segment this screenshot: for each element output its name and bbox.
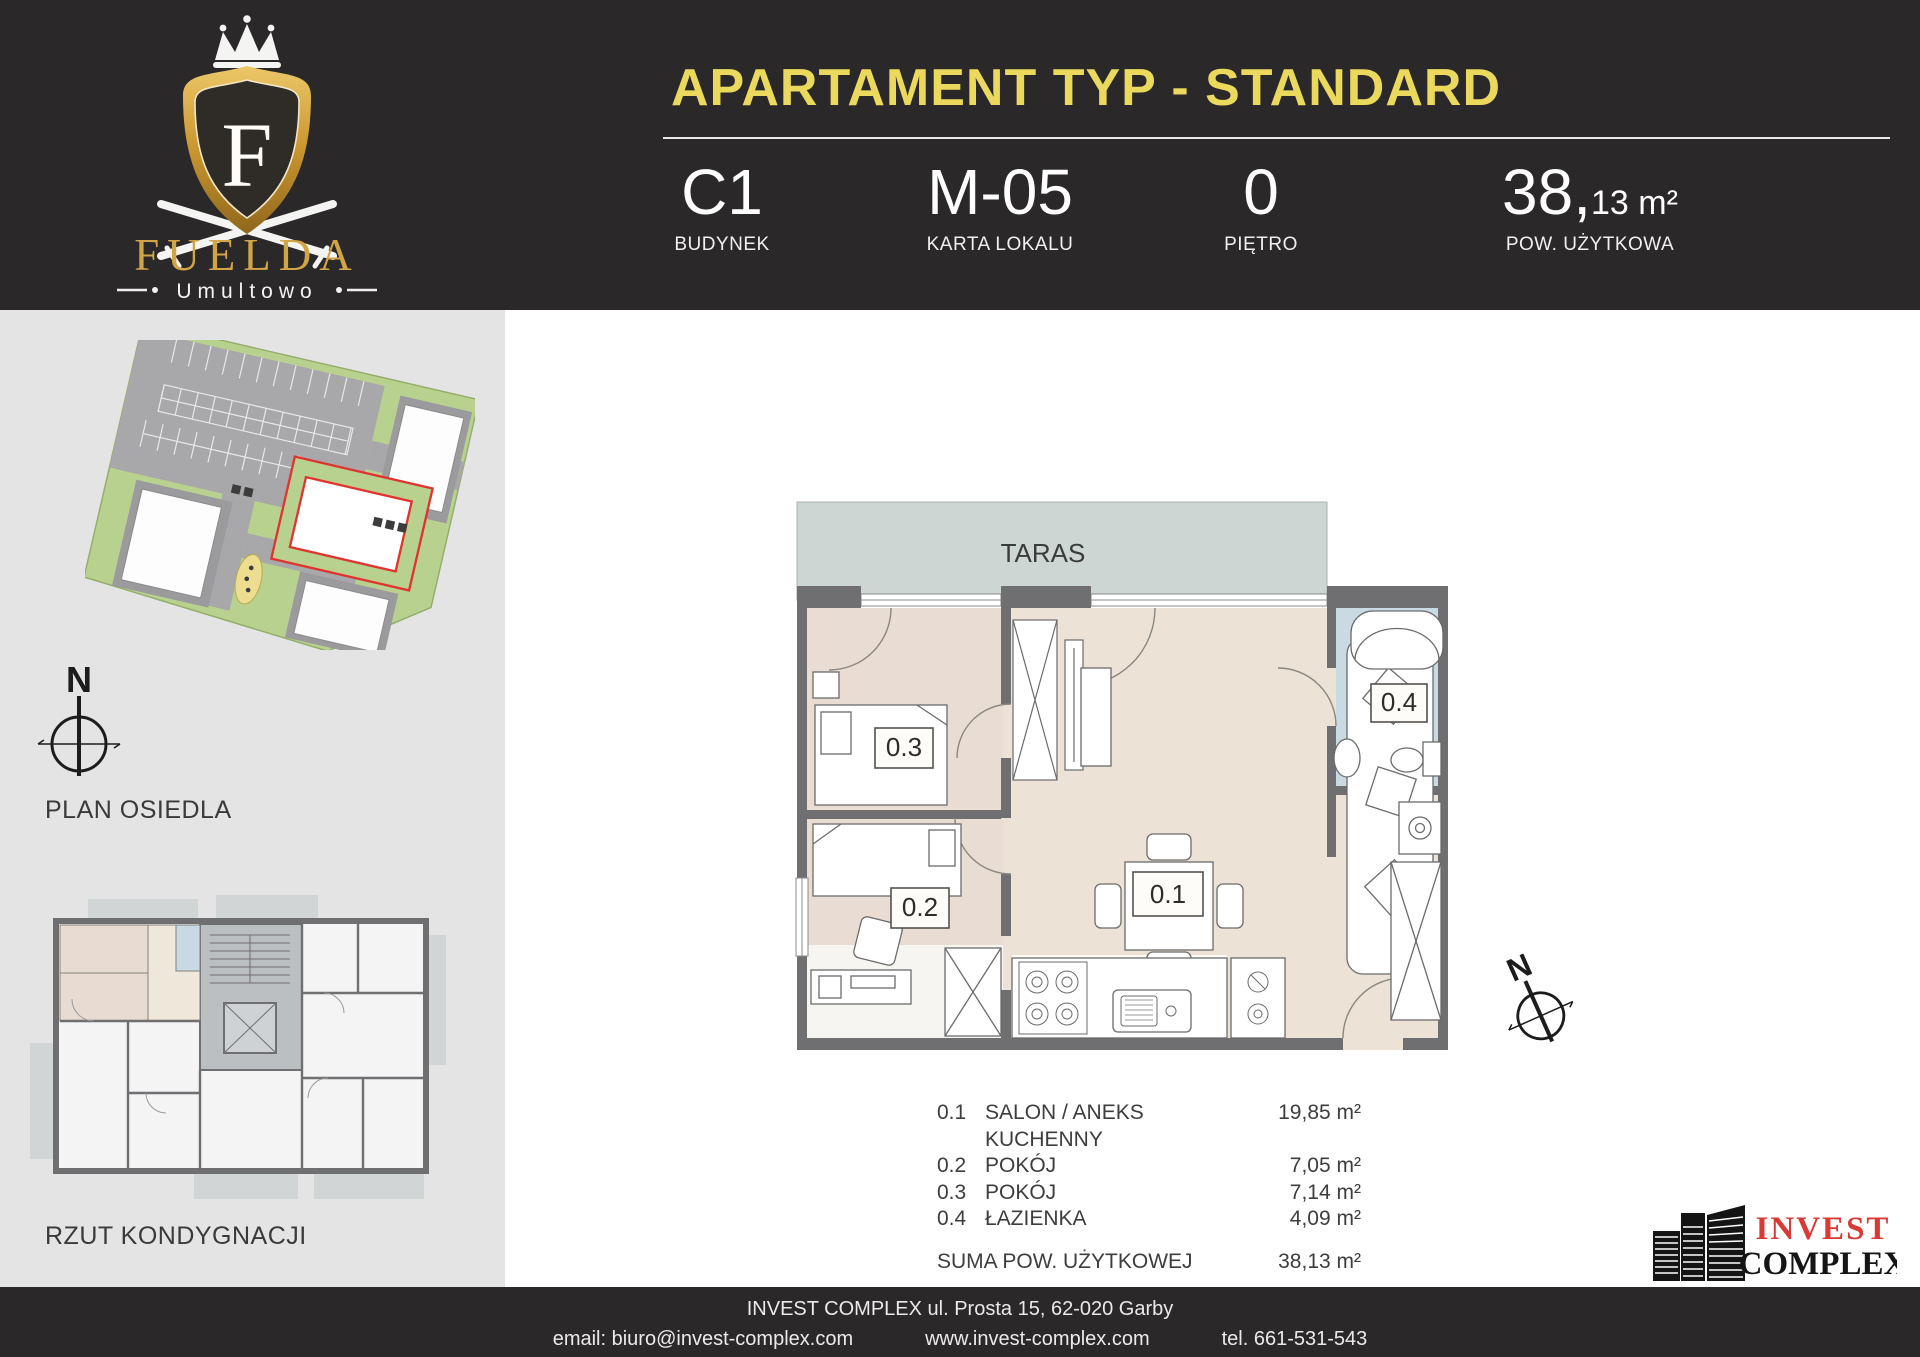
compass-icon: N — [30, 662, 140, 784]
logo-monogram: F — [221, 104, 272, 206]
legend-row: 0.4 ŁAZIENKA 4,09 m² — [937, 1206, 1361, 1233]
entrance-opening — [1343, 1038, 1403, 1050]
page-title: APARTAMENT TYP - STANDARD — [671, 58, 1501, 118]
footer-address: INVEST COMPLEX ul. Prosta 15, 62-020 Gar… — [0, 1298, 1920, 1321]
info-floor: 0 PIĘTRO — [1224, 160, 1298, 256]
invest-complex-logo: INVEST COMPLEX — [1645, 1197, 1897, 1285]
bathroom-label: 0.4 — [1371, 684, 1427, 722]
footer-phone: tel. 661-531-543 — [1222, 1328, 1368, 1351]
hall-wardrobe — [1391, 802, 1441, 1020]
svg-text:0.4: 0.4 — [1381, 687, 1417, 717]
legend-row: 0.3 POKÓJ 7,14 m² — [937, 1180, 1361, 1207]
stair-core — [200, 924, 302, 1070]
legend-row: 0.2 POKÓJ 7,05 m² — [937, 1153, 1361, 1180]
shield-icon: F — [183, 66, 311, 234]
room-02-label: 0.2 — [891, 888, 949, 928]
highlighted-apartment — [60, 925, 200, 1021]
fuelda-logo: F FUELDA Umultowo — [95, 8, 399, 308]
floor-overview — [28, 893, 448, 1211]
footer-website: www.invest-complex.com — [925, 1328, 1150, 1351]
side-window — [796, 878, 808, 956]
buildings-icon — [1653, 1205, 1745, 1281]
footer-email: email: biuro@invest-complex.com — [553, 1328, 853, 1351]
legend-total: SUMA POW. UŻYTKOWEJ 38,13 m² — [937, 1249, 1361, 1275]
plan-compass-icon: N — [1492, 948, 1592, 1063]
area-label: POW. UŻYTKOWA — [1502, 234, 1678, 256]
salon-label: 0.1 — [1133, 872, 1203, 916]
logo-location: Umultowo — [176, 280, 317, 303]
svg-text:0.3: 0.3 — [886, 732, 922, 762]
floor-label: PIĘTRO — [1224, 234, 1298, 256]
footer: INVEST COMPLEX ul. Prosta 15, 62-020 Gar… — [0, 1287, 1920, 1357]
svg-text:N: N — [1501, 948, 1537, 989]
closets — [1013, 620, 1083, 780]
room-03-label: 0.3 — [875, 728, 933, 768]
header-divider — [663, 137, 1890, 139]
info-area: 38,13 m² POW. UŻYTKOWA — [1502, 160, 1678, 256]
site-plan-caption: PLAN OSIEDLA — [45, 796, 232, 825]
crown-icon — [213, 15, 281, 68]
svg-text:0.2: 0.2 — [902, 892, 938, 922]
kitchen — [1012, 958, 1285, 1038]
building-label: BUDYNEK — [674, 234, 769, 256]
info-building: C1 BUDYNEK — [674, 160, 769, 256]
unit-label: KARTA LOKALU — [927, 234, 1074, 256]
logo-brand: FUELDA — [134, 230, 360, 280]
floor-value: 0 — [1224, 160, 1298, 224]
apartment-card: F FUELDA Umultowo APARTAMENT TYP - STAND… — [0, 0, 1920, 1357]
area-value: 38,13 m² — [1502, 160, 1678, 224]
partner-name-bottom: COMPLEX — [1739, 1246, 1897, 1282]
svg-text:N: N — [66, 662, 92, 700]
legend-row: 0.1 SALON / ANEKS KUCHENNY 19,85 m² — [937, 1100, 1361, 1153]
header: F FUELDA Umultowo APARTAMENT TYP - STAND… — [0, 0, 1920, 310]
terrace-label: TARAS — [1001, 538, 1086, 568]
windows — [861, 594, 1327, 606]
floor-overview-caption: RZUT KONDYGNACJI — [45, 1222, 307, 1251]
unit-value: M-05 — [927, 160, 1074, 224]
svg-text:0.1: 0.1 — [1150, 879, 1186, 909]
apartment-plan: TARAS — [795, 490, 1475, 1050]
site-plan — [85, 340, 475, 650]
sidebar: N PLAN OSIEDLA — [0, 310, 505, 1287]
partner-name-top: INVEST — [1756, 1211, 1891, 1247]
room-legend: 0.1 SALON / ANEKS KUCHENNY 19,85 m² 0.2 … — [937, 1100, 1361, 1275]
info-unit: M-05 KARTA LOKALU — [927, 160, 1074, 256]
building-value: C1 — [674, 160, 769, 224]
